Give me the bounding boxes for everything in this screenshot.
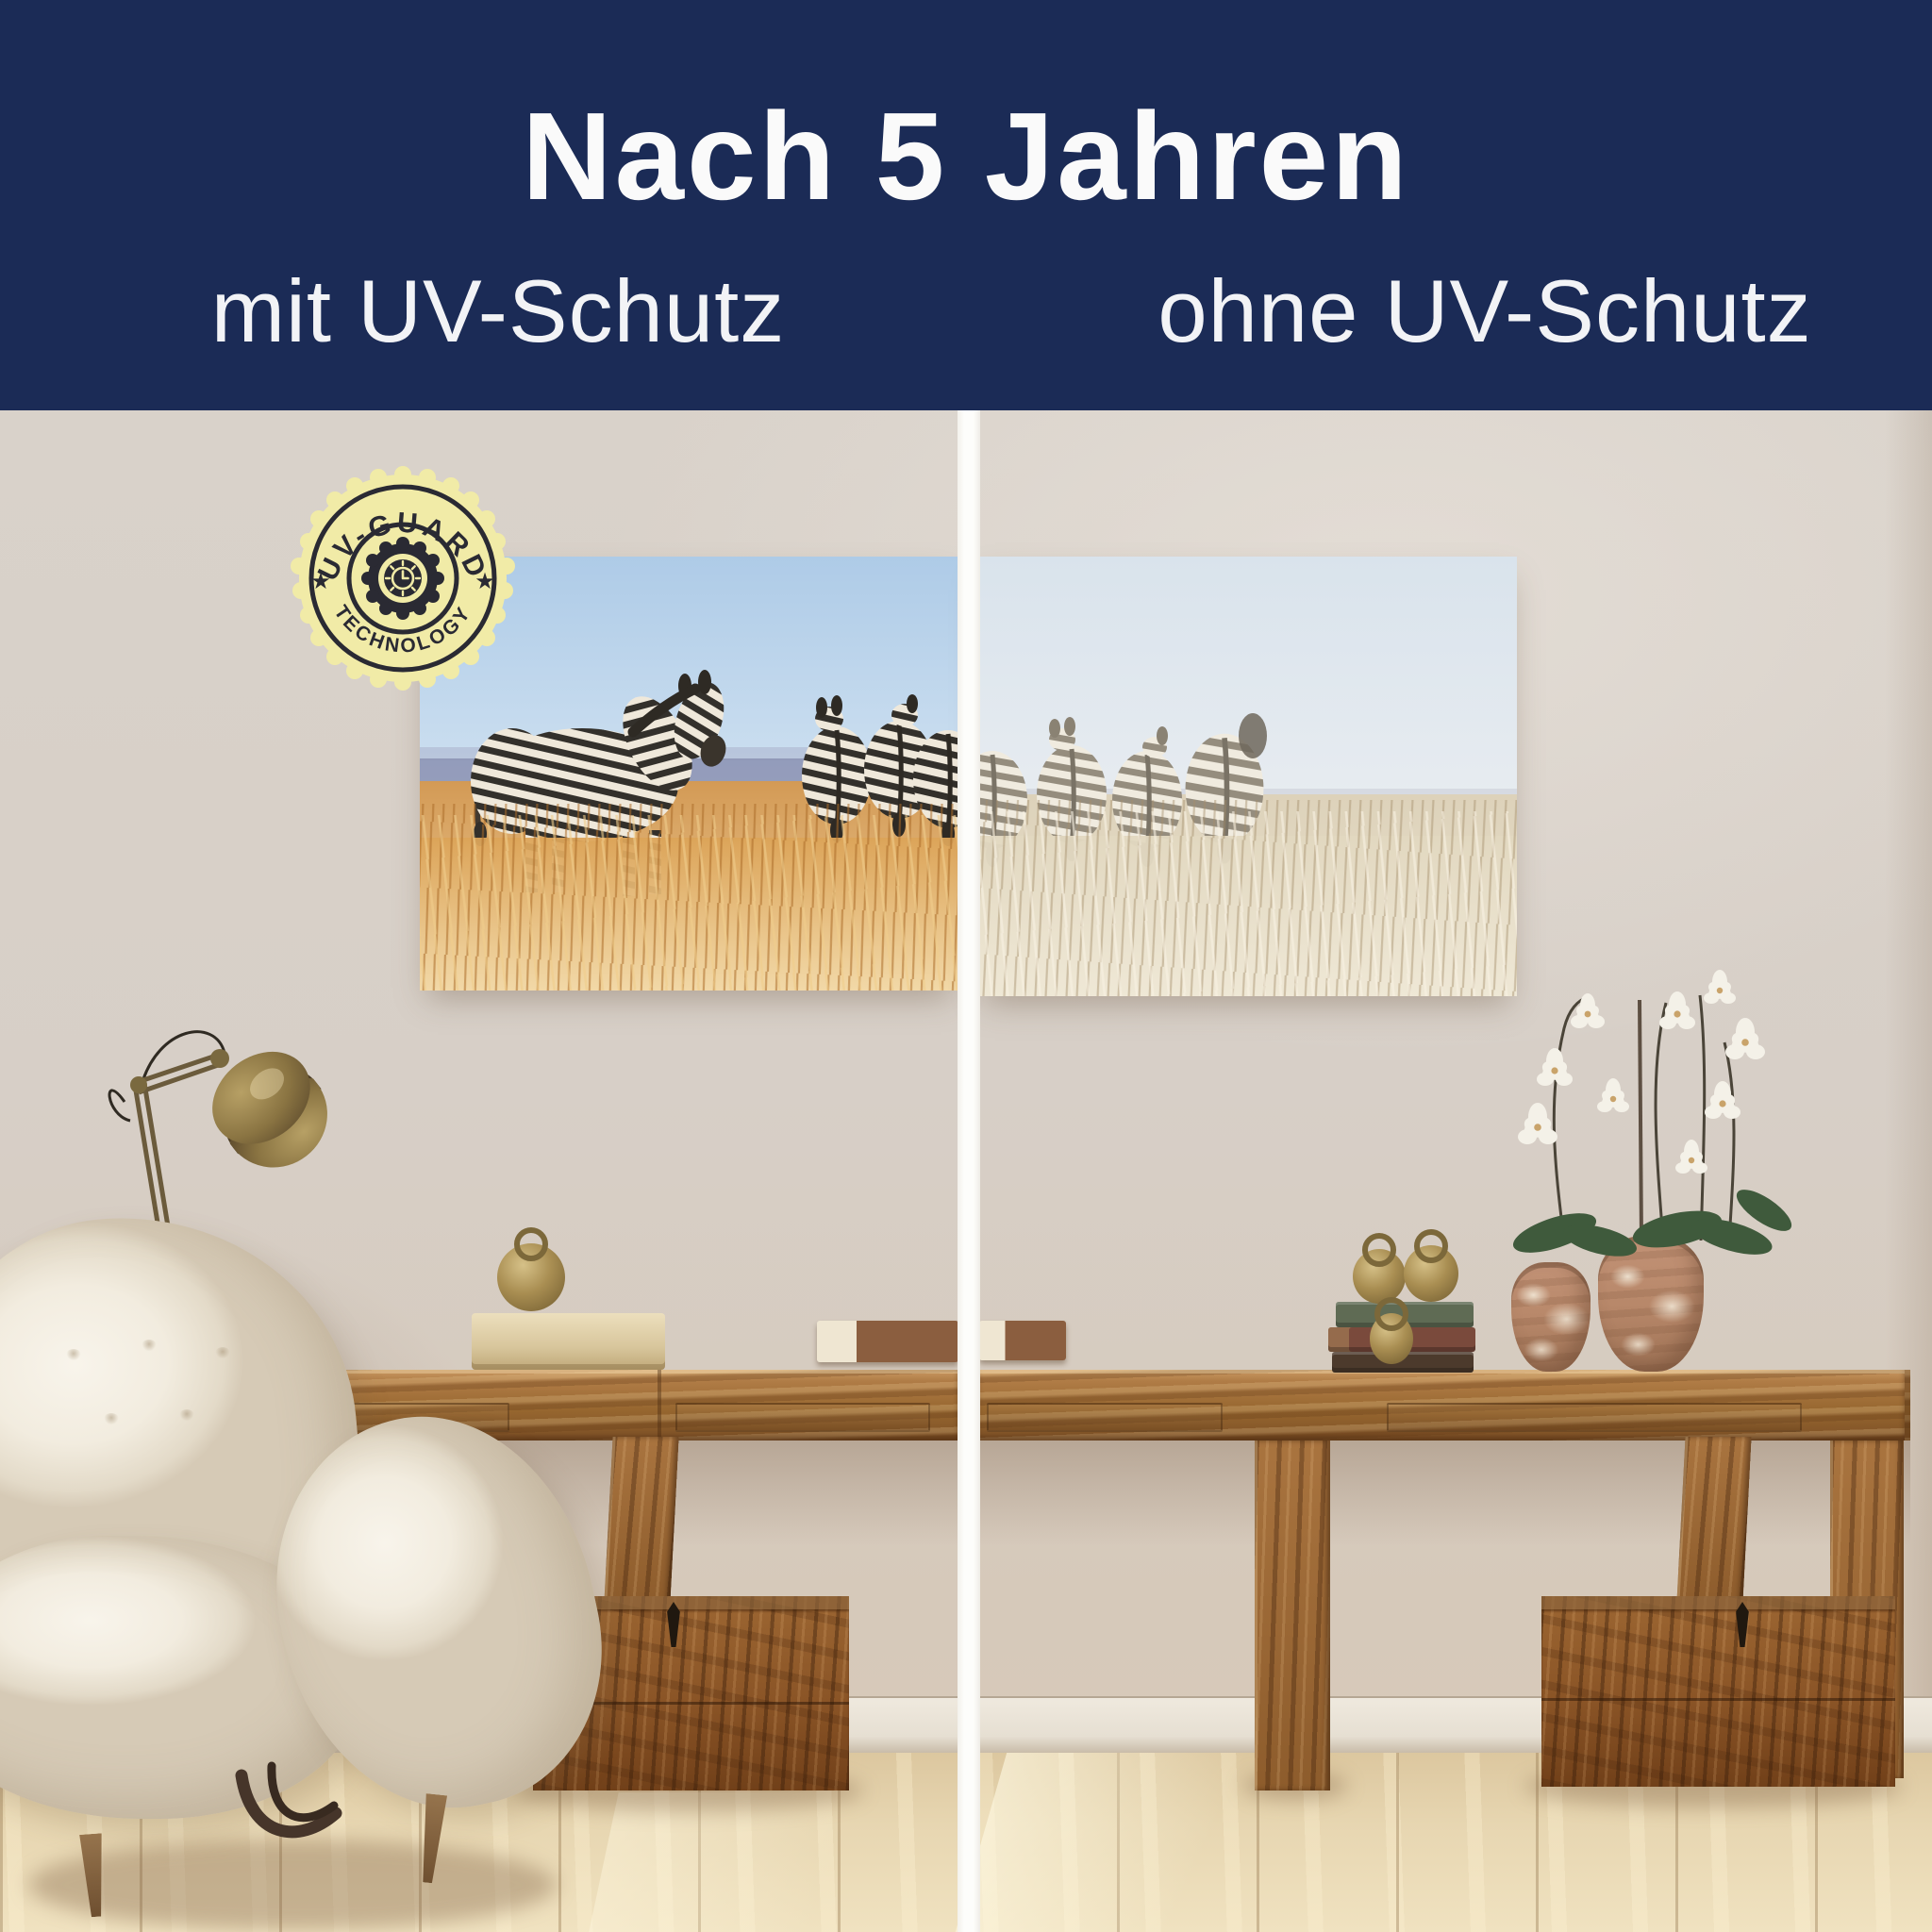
drawer-front [675,1403,930,1432]
canvas-print-without-uv [977,557,1517,996]
label-without-uv: ohne UV-Schutz [1143,262,1826,366]
armchair-base [223,1757,402,1860]
drawer-front [987,1403,1223,1432]
uv-guard-badge: UV-GUARD TECHNOLOGY ★ ★ [290,465,516,691]
book [979,1321,1066,1360]
zebra-photo-faded [977,557,1517,996]
brass-bell [1353,1249,1406,1304]
sunlight-patch [589,1792,901,1932]
brass-bell [1370,1313,1413,1364]
brass-bell [1404,1245,1458,1302]
comparison-divider [958,410,980,1932]
lamp-arms [135,1055,221,1228]
table-leg [1255,1441,1330,1790]
brass-bell [497,1243,565,1311]
terracotta-vase-small [1511,1262,1591,1372]
star-icon: ★ [310,569,331,594]
label-with-uv: mit UV-Schutz [160,262,836,366]
lamp-cable [109,1032,225,1121]
uv-protection-comparison-graphic: Nach 5 Jahren mit UV-Schutz ohne UV-Schu… [0,0,1932,1932]
book [817,1321,958,1362]
star-icon: ★ [475,569,495,594]
table-seam [658,1370,661,1441]
wooden-tray [472,1313,665,1370]
table-leg [1676,1437,1751,1603]
headline: Nach 5 Jahren [0,91,1932,223]
white-orchids [1498,958,1809,1269]
header-banner: Nach 5 Jahren mit UV-Schutz ohne UV-Schu… [0,0,1932,410]
table-leg [604,1437,678,1603]
wooden-chest-right [1541,1596,1895,1787]
drawer-front [1387,1403,1802,1432]
